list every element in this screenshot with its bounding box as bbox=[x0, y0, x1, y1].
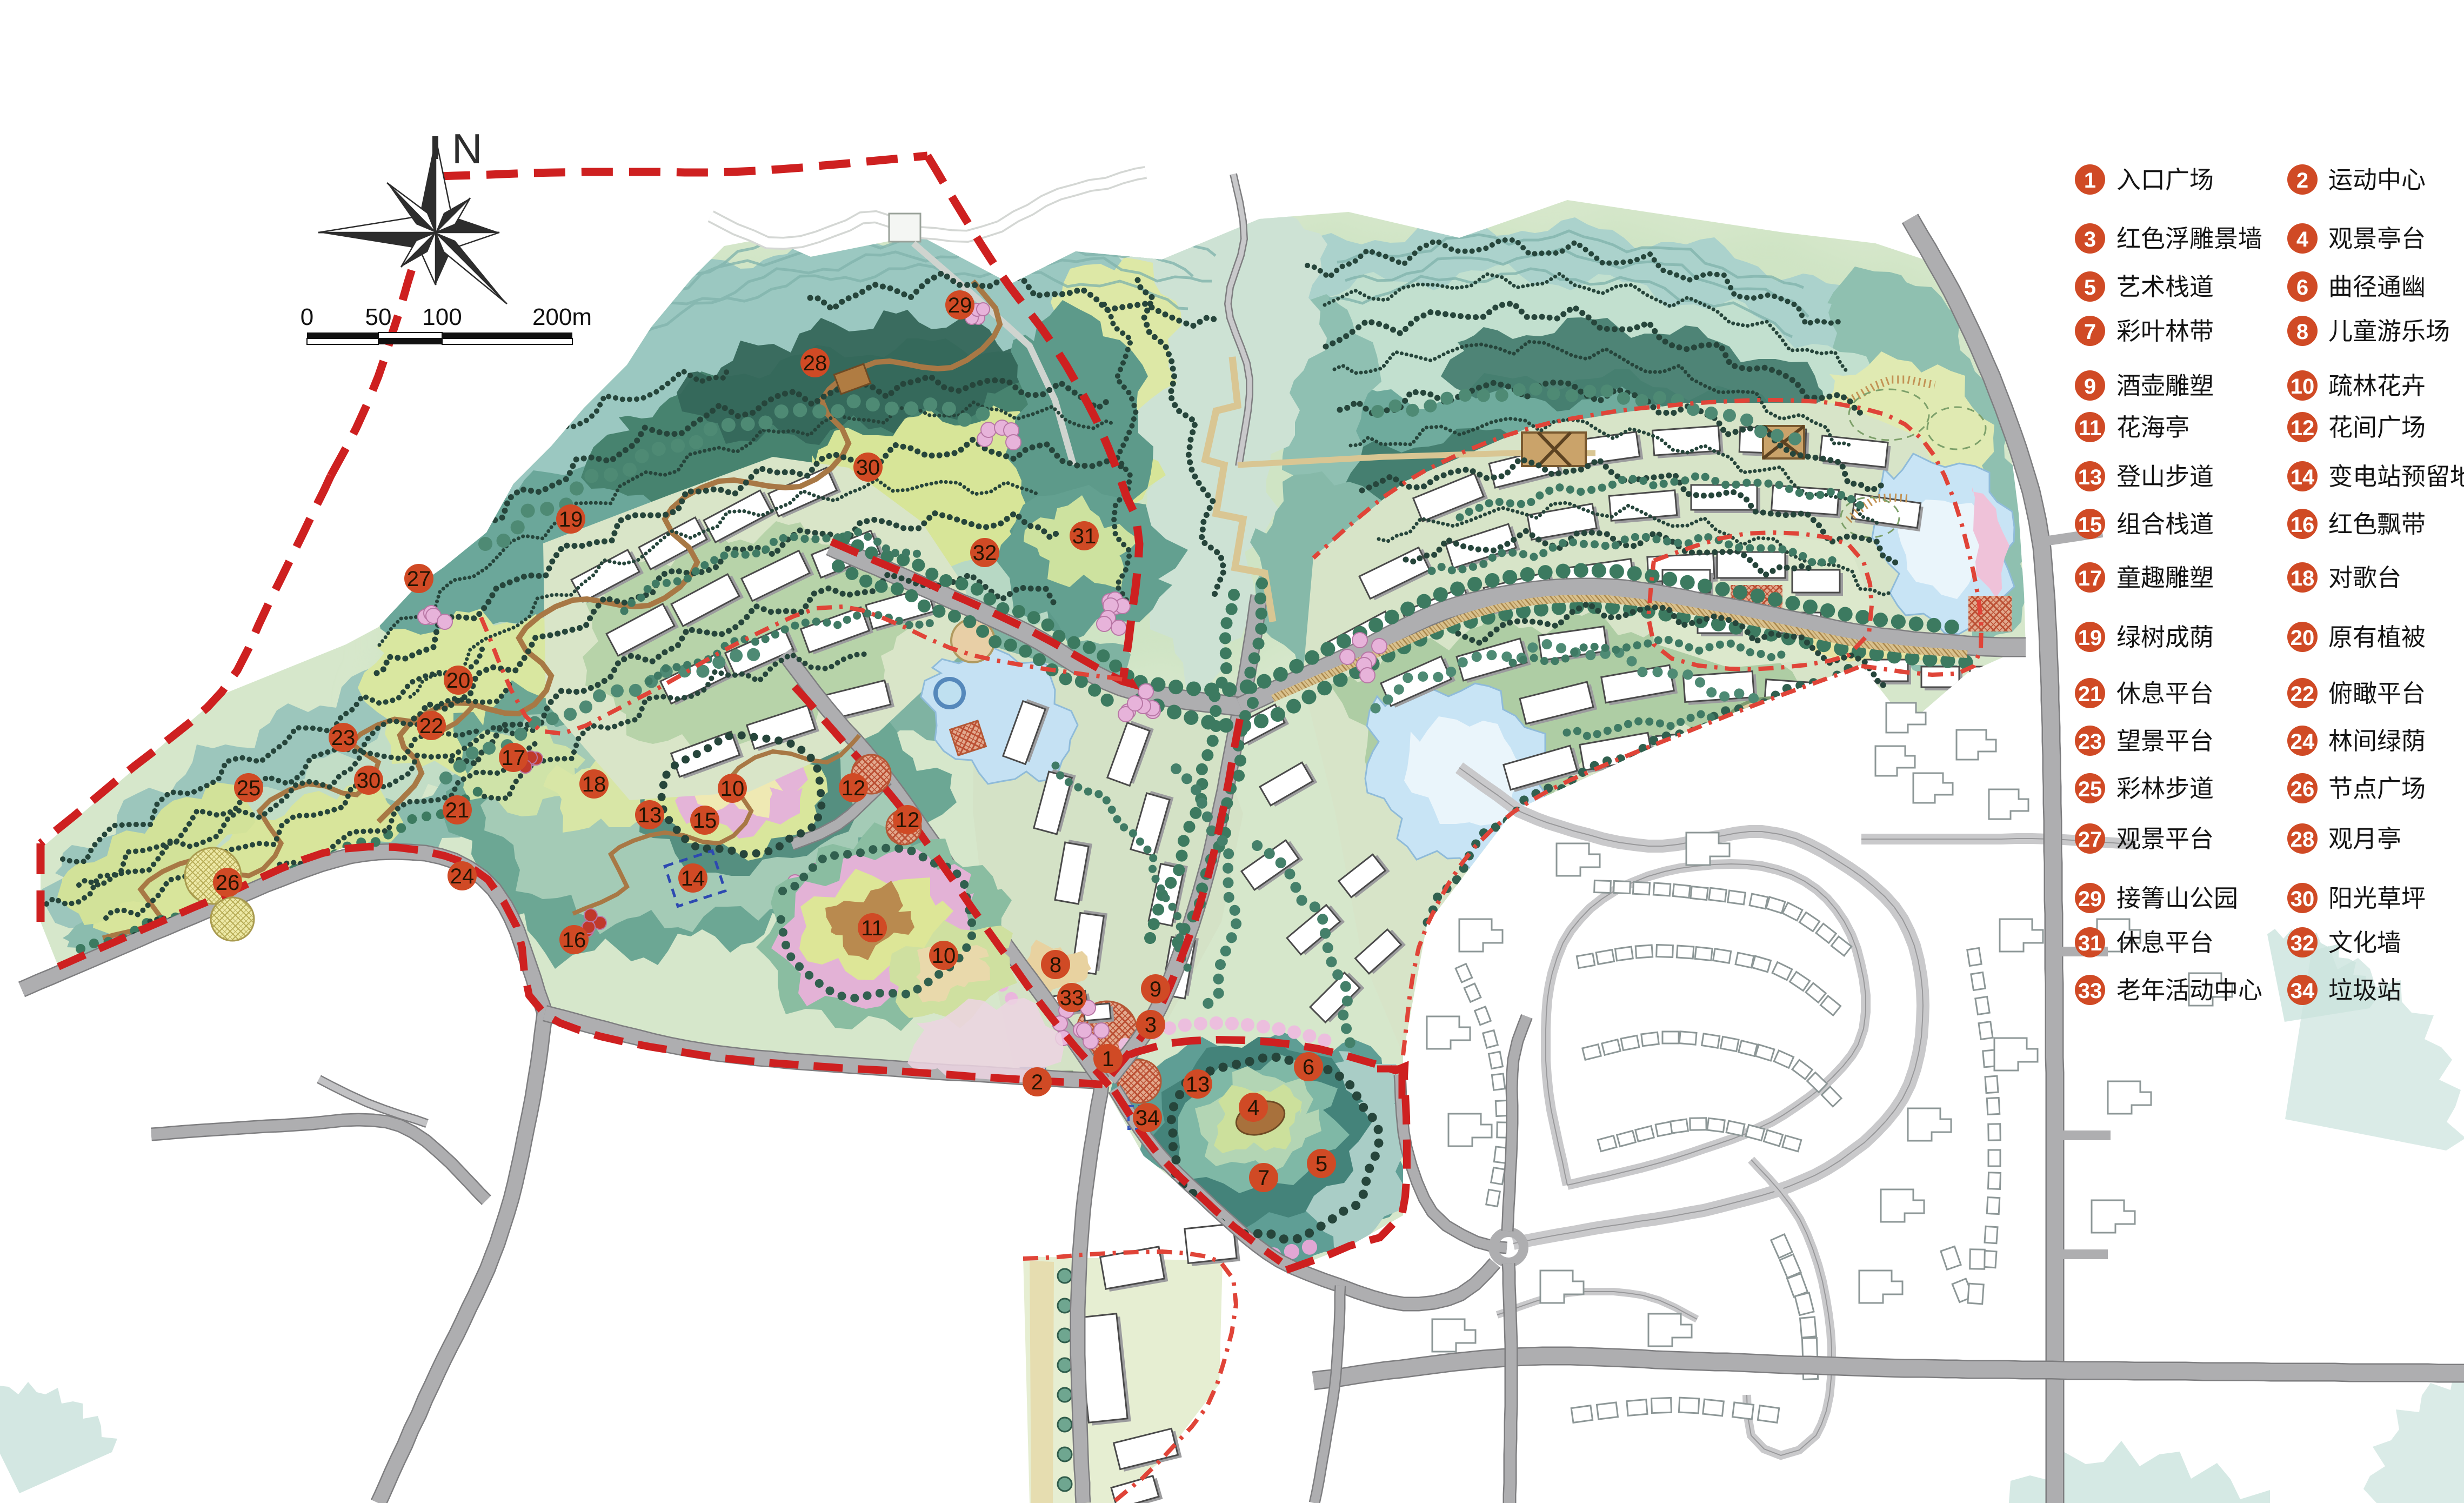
svg-text:17: 17 bbox=[2078, 567, 2102, 590]
svg-text:12: 12 bbox=[842, 776, 866, 800]
svg-text:4: 4 bbox=[1247, 1096, 1259, 1120]
svg-text:15: 15 bbox=[693, 809, 717, 833]
svg-text:3: 3 bbox=[2084, 228, 2096, 251]
svg-text:对歌台: 对歌台 bbox=[2328, 564, 2401, 591]
svg-text:27: 27 bbox=[2078, 828, 2102, 852]
svg-text:观月亭: 观月亭 bbox=[2328, 825, 2401, 853]
svg-text:节点广场: 节点广场 bbox=[2328, 775, 2426, 802]
svg-text:花海亭: 花海亭 bbox=[2116, 414, 2189, 441]
svg-text:24: 24 bbox=[450, 864, 475, 888]
svg-text:9: 9 bbox=[1150, 977, 1161, 1001]
svg-text:16: 16 bbox=[562, 928, 586, 952]
svg-text:21: 21 bbox=[445, 799, 470, 822]
svg-text:老年活动中心: 老年活动中心 bbox=[2116, 976, 2262, 1004]
svg-text:13: 13 bbox=[638, 803, 662, 827]
svg-text:26: 26 bbox=[216, 871, 240, 895]
svg-text:22: 22 bbox=[419, 714, 444, 738]
svg-text:19: 19 bbox=[2078, 626, 2102, 650]
svg-text:24: 24 bbox=[2291, 730, 2315, 754]
svg-text:7: 7 bbox=[1258, 1166, 1270, 1190]
svg-text:5: 5 bbox=[2084, 276, 2096, 300]
svg-text:17: 17 bbox=[502, 746, 526, 770]
svg-text:10: 10 bbox=[932, 944, 956, 968]
svg-text:N: N bbox=[452, 125, 482, 172]
svg-text:原有植被: 原有植被 bbox=[2328, 623, 2426, 651]
svg-text:童趣雕塑: 童趣雕塑 bbox=[2116, 564, 2214, 591]
svg-text:休息平台: 休息平台 bbox=[2116, 680, 2214, 707]
svg-text:4: 4 bbox=[2296, 228, 2309, 251]
svg-text:疏林花卉: 疏林花卉 bbox=[2328, 372, 2426, 400]
svg-text:2: 2 bbox=[2296, 169, 2308, 192]
svg-text:1: 1 bbox=[1102, 1047, 1114, 1071]
svg-text:31: 31 bbox=[1072, 524, 1097, 548]
svg-text:12: 12 bbox=[896, 808, 920, 832]
svg-text:观景亭台: 观景亭台 bbox=[2328, 225, 2426, 252]
svg-text:7: 7 bbox=[2084, 320, 2096, 344]
svg-text:文化墙: 文化墙 bbox=[2328, 929, 2401, 956]
svg-text:29: 29 bbox=[948, 294, 972, 317]
svg-text:11: 11 bbox=[861, 916, 884, 940]
svg-text:30: 30 bbox=[856, 456, 880, 480]
svg-text:彩叶林带: 彩叶林带 bbox=[2116, 317, 2214, 345]
svg-text:20: 20 bbox=[446, 669, 471, 693]
svg-text:19: 19 bbox=[559, 508, 583, 531]
svg-text:休息平台: 休息平台 bbox=[2116, 929, 2214, 956]
svg-text:14: 14 bbox=[681, 867, 705, 890]
svg-text:8: 8 bbox=[1050, 953, 1061, 977]
svg-text:12: 12 bbox=[2291, 416, 2315, 440]
svg-text:红色飘带: 红色飘带 bbox=[2328, 510, 2426, 538]
svg-text:29: 29 bbox=[2078, 887, 2102, 911]
svg-text:34: 34 bbox=[2291, 979, 2315, 1003]
svg-text:18: 18 bbox=[582, 773, 606, 796]
svg-text:28: 28 bbox=[803, 351, 827, 375]
svg-text:14: 14 bbox=[2291, 465, 2315, 489]
svg-text:27: 27 bbox=[407, 567, 431, 591]
svg-text:13: 13 bbox=[1186, 1073, 1210, 1096]
svg-text:曲径通幽: 曲径通幽 bbox=[2328, 273, 2426, 301]
svg-text:100: 100 bbox=[422, 304, 462, 330]
svg-text:10: 10 bbox=[2291, 375, 2315, 398]
svg-text:20: 20 bbox=[2291, 626, 2315, 650]
svg-text:望景平台: 望景平台 bbox=[2116, 727, 2214, 755]
svg-text:俯瞰平台: 俯瞰平台 bbox=[2328, 680, 2426, 707]
svg-text:登山步道: 登山步道 bbox=[2116, 463, 2214, 490]
svg-text:30: 30 bbox=[2291, 887, 2315, 911]
svg-text:50: 50 bbox=[365, 304, 392, 330]
svg-text:花间广场: 花间广场 bbox=[2328, 414, 2426, 441]
svg-text:23: 23 bbox=[2078, 730, 2102, 754]
svg-text:15: 15 bbox=[2078, 513, 2102, 537]
svg-text:接箐山公园: 接箐山公园 bbox=[2116, 884, 2238, 912]
svg-text:23: 23 bbox=[331, 726, 356, 750]
svg-text:变电站预留地: 变电站预留地 bbox=[2328, 463, 2464, 490]
svg-text:2: 2 bbox=[1031, 1070, 1043, 1094]
svg-text:200m: 200m bbox=[532, 304, 592, 330]
svg-text:运动中心: 运动中心 bbox=[2328, 166, 2426, 194]
svg-text:11: 11 bbox=[2079, 416, 2101, 440]
svg-text:33: 33 bbox=[2078, 979, 2102, 1003]
svg-text:入口广场: 入口广场 bbox=[2116, 166, 2214, 194]
svg-text:红色浮雕景墙: 红色浮雕景墙 bbox=[2116, 225, 2262, 252]
svg-text:33: 33 bbox=[1060, 986, 1084, 1010]
svg-text:6: 6 bbox=[1303, 1055, 1314, 1079]
svg-text:绿树成荫: 绿树成荫 bbox=[2116, 623, 2214, 651]
svg-text:林间绿荫: 林间绿荫 bbox=[2328, 727, 2426, 755]
svg-text:30: 30 bbox=[357, 769, 381, 793]
svg-text:1: 1 bbox=[2084, 169, 2096, 192]
svg-text:垃圾站: 垃圾站 bbox=[2328, 976, 2401, 1004]
svg-text:18: 18 bbox=[2291, 567, 2315, 590]
svg-text:酒壶雕塑: 酒壶雕塑 bbox=[2116, 372, 2214, 400]
svg-text:25: 25 bbox=[237, 776, 261, 800]
svg-text:组合栈道: 组合栈道 bbox=[2116, 510, 2214, 538]
svg-text:8: 8 bbox=[2296, 320, 2308, 344]
svg-text:31: 31 bbox=[2078, 932, 2102, 955]
svg-text:艺术栈道: 艺术栈道 bbox=[2116, 273, 2214, 301]
svg-text:32: 32 bbox=[2291, 932, 2315, 955]
svg-text:6: 6 bbox=[2296, 276, 2308, 300]
svg-text:5: 5 bbox=[1316, 1152, 1327, 1176]
svg-text:34: 34 bbox=[1136, 1106, 1160, 1130]
svg-text:13: 13 bbox=[2078, 465, 2102, 489]
svg-text:22: 22 bbox=[2291, 682, 2315, 706]
svg-text:25: 25 bbox=[2078, 777, 2102, 801]
svg-text:26: 26 bbox=[2291, 777, 2315, 801]
svg-text:21: 21 bbox=[2078, 682, 2102, 706]
svg-text:32: 32 bbox=[973, 541, 997, 565]
svg-text:3: 3 bbox=[1145, 1013, 1157, 1037]
svg-text:彩林步道: 彩林步道 bbox=[2116, 775, 2214, 802]
svg-text:16: 16 bbox=[2291, 513, 2315, 537]
svg-text:阳光草坪: 阳光草坪 bbox=[2328, 884, 2426, 912]
svg-text:9: 9 bbox=[2084, 375, 2096, 398]
svg-text:28: 28 bbox=[2291, 828, 2315, 852]
svg-text:观景平台: 观景平台 bbox=[2116, 825, 2214, 853]
svg-text:10: 10 bbox=[720, 777, 745, 801]
svg-text:儿童游乐场: 儿童游乐场 bbox=[2328, 317, 2450, 345]
svg-text:0: 0 bbox=[301, 304, 313, 330]
